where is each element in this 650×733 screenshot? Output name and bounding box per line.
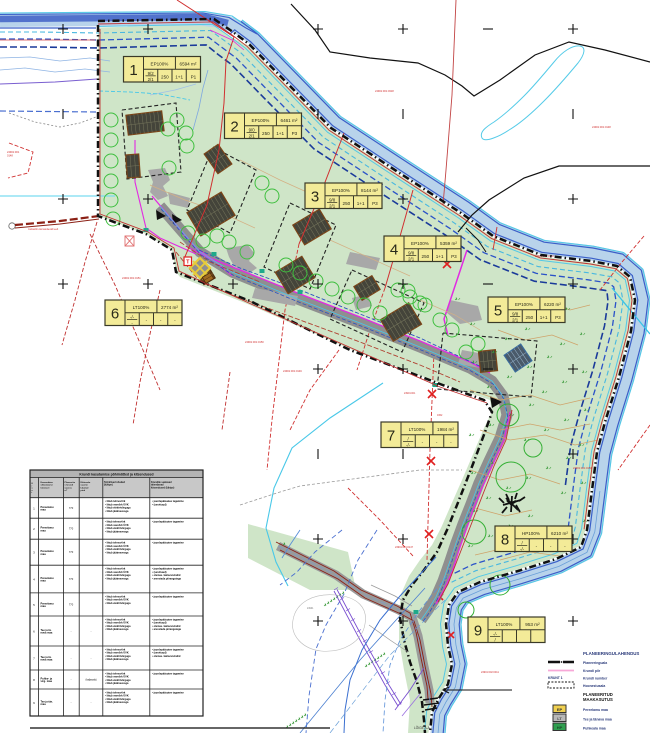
svg-text:1+1: 1+1 [357, 201, 365, 206]
svg-text:0152: 0152 [437, 414, 443, 417]
svg-text:nava maa: nava maa [41, 632, 53, 635]
svg-text:pind: pind [81, 490, 86, 492]
svg-text:P3: P3 [292, 131, 298, 136]
svg-text:kitsendused (lühipe): kitsendused (lühipe) [151, 486, 174, 489]
svg-text:• liitub jäätmeveoga: • liitub jäätmeveoga [105, 701, 129, 704]
svg-text:• liitub jäätmeveoga: • liitub jäätmeveoga [105, 658, 129, 661]
svg-text:Krundi kasutamise põhimõtted j: Krundi kasutamise põhimõtted ja kitsendu… [79, 472, 153, 476]
svg-text:2: 2 [33, 527, 35, 531]
svg-text:24901:001:0151: 24901:001:0151 [122, 276, 141, 280]
svg-text:-: - [91, 702, 92, 705]
svg-text:24901:001:0150: 24901:001:0150 [245, 340, 264, 344]
svg-text:2/1: 2/1 [249, 133, 256, 138]
svg-text:770: 770 [69, 550, 74, 554]
svg-text:770: 770 [69, 506, 74, 510]
svg-text:maa: maa [41, 553, 47, 556]
svg-text:LT100%: LT100% [409, 427, 426, 432]
svg-text:• liitub jäätmeveoga: • liitub jäätmeveoga [105, 628, 129, 631]
svg-text:m²: m² [65, 489, 68, 492]
svg-text:nava maa: nava maa [41, 659, 53, 662]
svg-text:250: 250 [422, 254, 430, 259]
svg-text:v krundi: v krundi [65, 485, 74, 487]
svg-text:770: 770 [69, 527, 74, 531]
svg-text:Puhkeala maa: Puhkeala maa [583, 727, 606, 731]
svg-text:1+1: 1+1 [540, 315, 548, 320]
svg-text:-/-: -/- [520, 546, 525, 551]
svg-text:P3: P3 [451, 254, 457, 259]
svg-text:LÕIGE A-A: LÕIGE A-A [414, 725, 431, 730]
svg-text:7: 7 [33, 657, 35, 661]
svg-text:24901: 24901 [307, 608, 314, 610]
svg-text:2/1: 2/1 [148, 77, 155, 82]
svg-text:Krundi number: Krundi number [583, 677, 608, 681]
svg-text:4: 4 [33, 578, 35, 582]
svg-text:LT100%: LT100% [133, 305, 150, 310]
svg-text:8: 8 [33, 678, 35, 682]
svg-text:9/8: 9/8 [329, 197, 336, 202]
svg-text:Krundi piir: Krundi piir [583, 669, 601, 673]
svg-text:4: 4 [390, 241, 398, 258]
svg-text:770: 770 [69, 602, 74, 606]
svg-text:250: 250 [343, 201, 351, 206]
svg-text:2774 m²: 2774 m² [161, 305, 178, 310]
svg-text:2: 2 [230, 118, 238, 135]
svg-text:• arvestada piirangutega: • arvestada piirangutega [152, 577, 182, 580]
svg-text:HP: HP [557, 725, 563, 730]
svg-text:-: - [71, 679, 72, 682]
svg-text:2/1: 2/1 [329, 203, 336, 208]
svg-text:-: - [91, 657, 92, 660]
svg-text:HP100%: HP100% [522, 531, 540, 536]
svg-text:8144 m²: 8144 m² [361, 188, 378, 193]
svg-text:250: 250 [262, 131, 270, 136]
svg-text:virg. maa: virg. maa [41, 679, 53, 683]
svg-text:-: - [71, 702, 72, 705]
svg-text:-: - [71, 657, 72, 660]
svg-text:1: 1 [129, 62, 137, 79]
svg-text:7: 7 [387, 427, 395, 444]
svg-text:P1: P1 [191, 74, 197, 79]
svg-text:suurus: suurus [65, 487, 73, 489]
svg-text:EP100%: EP100% [411, 241, 429, 246]
svg-text:6220 m²: 6220 m² [544, 302, 561, 307]
svg-text:sihtotstarve: sihtotstarve [41, 484, 54, 487]
svg-text:24901:001:0149: 24901:001:0149 [283, 369, 302, 373]
svg-text:5: 5 [33, 603, 35, 607]
svg-text:Planeeringuala: Planeeringuala [583, 661, 607, 665]
svg-text:-/-: -/- [493, 631, 498, 636]
svg-text:• liitub jäätmeveoga: • liitub jäätmeveoga [105, 682, 129, 685]
svg-text:LT100%: LT100% [496, 622, 513, 627]
svg-text:24901:002:0011: 24901:002:0011 [481, 671, 499, 674]
svg-text:(lühipe): (lühipe) [104, 484, 113, 487]
svg-text:EP100%: EP100% [151, 61, 169, 66]
svg-text:9/2: 9/2 [148, 71, 155, 76]
svg-text:• juurdepääsutee tagamine: • juurdepääsutee tagamine [152, 673, 184, 676]
svg-text:PLANEERINGULAHENDUS: PLANEERINGULAHENDUS [583, 651, 639, 656]
svg-text:1+1: 1+1 [175, 74, 183, 79]
svg-text:770: 770 [69, 577, 74, 581]
svg-text:LT: LT [557, 716, 562, 721]
svg-text:2/1: 2/1 [408, 256, 415, 261]
svg-text:EP100%: EP100% [515, 302, 533, 307]
svg-text:0148: 0148 [7, 154, 13, 158]
svg-text:1+1: 1+1 [436, 254, 444, 259]
svg-text:Hoonestusala: Hoonestusala [583, 684, 605, 688]
svg-text:maa: maa [41, 509, 47, 512]
svg-text:250: 250 [161, 74, 169, 79]
svg-text:• liitub jäätmeveoga: • liitub jäätmeveoga [105, 551, 129, 554]
svg-text:maa: maa [41, 703, 47, 706]
svg-text:24901:001: 24901:001 [404, 392, 416, 395]
svg-text:24901:001:0318: 24901:001:0318 [375, 89, 394, 93]
svg-text:maa: maa [41, 529, 47, 532]
svg-text:Ehitusala: Ehitusala [81, 481, 92, 484]
svg-text:-: - [71, 630, 72, 633]
svg-text:953 m²: 953 m² [525, 622, 540, 627]
svg-text:-/-: -/- [130, 314, 135, 319]
svg-text:3: 3 [33, 551, 35, 555]
svg-text:Pereelamu maa: Pereelamu maa [583, 708, 608, 712]
svg-text:6: 6 [33, 630, 35, 634]
svg-text:/otstarve: /otstarve [41, 486, 51, 489]
svg-text:P3: P3 [555, 315, 561, 320]
svg-text:1+1: 1+1 [276, 131, 284, 136]
svg-text:6461 m²: 6461 m² [281, 118, 298, 123]
svg-text:KRUNT 1: KRUNT 1 [548, 676, 563, 680]
svg-text:Planeerita: Planeerita [65, 481, 76, 484]
svg-text:P3: P3 [372, 201, 378, 206]
svg-text:• liitub elektrivõrguga: • liitub elektrivõrguga [105, 602, 131, 605]
svg-text:24901:001:0153: 24901:001:0153 [573, 466, 592, 470]
svg-text:2/1: 2/1 [512, 317, 519, 322]
svg-text:• liitub jäätmeveoga: • liitub jäätmeveoga [105, 530, 129, 533]
svg-text:lubatud: lubatud [81, 486, 90, 489]
svg-text:24901:001: 24901:001 [7, 150, 20, 154]
svg-text:• liitub jäätmeveoga: • liitub jäätmeveoga [105, 577, 129, 580]
svg-text:EP100%: EP100% [332, 188, 350, 193]
svg-text:9/8: 9/8 [408, 250, 415, 255]
svg-text:• juurdepääsutee tagamine: • juurdepääsutee tagamine [152, 542, 184, 545]
svg-text:maa: maa [41, 605, 47, 608]
svg-text:(haljasala): (haljasala) [85, 679, 96, 682]
svg-text:1: 1 [33, 506, 35, 510]
svg-text:mahasõit olemasolevalt teelt: mahasõit olemasolevalt teelt [28, 228, 59, 231]
svg-text:-/-: -/- [406, 442, 411, 447]
svg-text:• juurdepääsutee tagamine: • juurdepääsutee tagamine [152, 521, 184, 524]
svg-text:• juurdepääsutee tagamine: • juurdepääsutee tagamine [152, 595, 184, 598]
svg-text:1984 m²: 1984 m² [437, 427, 454, 432]
svg-text:Tee ja tänava maa: Tee ja tänava maa [583, 718, 612, 722]
svg-text:9/8: 9/8 [512, 311, 519, 316]
svg-text:• liitub jäätmeveoga: • liitub jäätmeveoga [105, 510, 129, 513]
svg-text:3: 3 [311, 188, 319, 205]
svg-text:• juurdepääsutee tagamine: • juurdepääsutee tagamine [152, 692, 184, 695]
svg-text:6210 m²: 6210 m² [551, 531, 568, 536]
svg-text:maa: maa [41, 580, 47, 583]
svg-text:9/0: 9/0 [249, 127, 256, 132]
svg-text:• olemas. kaitsevööndid: • olemas. kaitsevööndid [152, 655, 181, 658]
svg-text:MAAKASUTUS: MAAKASUTUS [583, 697, 613, 702]
svg-text:Kavandatav: Kavandatav [41, 481, 54, 484]
svg-text:8: 8 [501, 531, 509, 548]
svg-text:5359 m²: 5359 m² [440, 241, 457, 246]
svg-text:24901:001:0148: 24901:001:0148 [592, 125, 611, 129]
svg-text:24901:001:0147: 24901:001:0147 [395, 546, 414, 549]
svg-text:6594 m²: 6594 m² [180, 61, 197, 66]
svg-text:• (servituud): • (servituud) [152, 503, 167, 506]
svg-text:9: 9 [474, 622, 482, 639]
svg-text:suurim: suurim [81, 485, 88, 487]
svg-text:5: 5 [494, 302, 502, 319]
svg-text:9: 9 [33, 701, 35, 705]
svg-text:-: - [91, 630, 92, 633]
svg-text:EP: EP [557, 707, 563, 712]
svg-text:250: 250 [526, 315, 534, 320]
svg-text:EP100%: EP100% [252, 118, 270, 123]
svg-text:• arvestada piirangutega: • arvestada piirangutega [152, 628, 182, 631]
svg-text:6: 6 [111, 305, 119, 322]
